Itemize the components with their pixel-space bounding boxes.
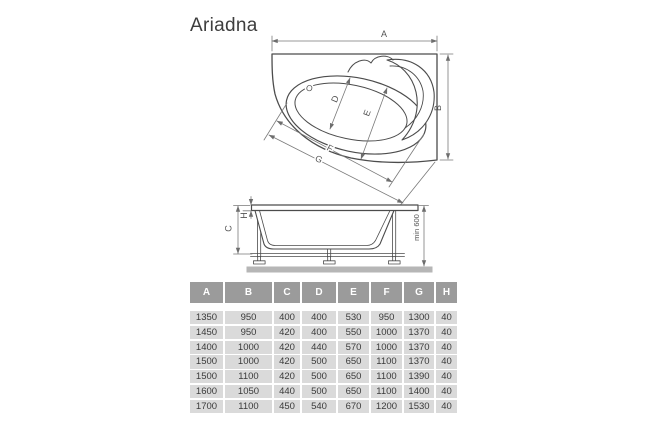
table-cell: 1530 (404, 400, 434, 413)
table-cell: 1000 (225, 341, 272, 354)
table-cell: 570 (338, 341, 369, 354)
table-cell: 400 (274, 311, 300, 324)
table-cell: 950 (225, 311, 272, 324)
table-body: 1350950400400530950130040145095042040055… (190, 311, 457, 413)
dimensions-table: ABCDEFGH 1350950400400530950130040145095… (190, 282, 457, 413)
frame-foot (328, 257, 331, 262)
table-cell: 420 (274, 370, 300, 383)
table-cell: 1500 (190, 355, 223, 368)
table-cell: 950 (371, 311, 402, 324)
frame-foot-plate (254, 261, 266, 264)
dim-label-h: H (239, 212, 249, 219)
table-cell: 40 (436, 341, 457, 354)
table-cell: 1370 (404, 355, 434, 368)
column-header: B (225, 282, 272, 303)
table-cell: 400 (302, 326, 336, 339)
table-cell: 550 (338, 326, 369, 339)
table-cell: 1100 (225, 370, 272, 383)
frame-foot-plate (324, 261, 336, 264)
table-cell: 650 (338, 385, 369, 398)
table-cell: 1400 (190, 341, 223, 354)
table-cell: 1000 (371, 341, 402, 354)
table-cell: 530 (338, 311, 369, 324)
table-cell: 650 (338, 355, 369, 368)
table-cell: 1350 (190, 311, 223, 324)
table-cell: 40 (436, 400, 457, 413)
side-view-drawing: C H min 600 (224, 197, 433, 273)
dim-ext-line (398, 162, 435, 208)
table-cell: 400 (302, 311, 336, 324)
table-cell: 1100 (371, 385, 402, 398)
table-cell: 1100 (371, 355, 402, 368)
table-cell: 40 (436, 385, 457, 398)
column-header: C (274, 282, 300, 303)
floor-bar (247, 267, 433, 273)
table-cell: 1700 (190, 400, 223, 413)
table-cell: 40 (436, 326, 457, 339)
table-header: ABCDEFGH (190, 282, 457, 303)
technical-drawing: A B O D E F G (185, 22, 465, 282)
table-cell: 670 (338, 400, 369, 413)
dim-label-min600: min 600 (412, 214, 421, 241)
column-header: F (371, 282, 402, 303)
table-cell: 540 (302, 400, 336, 413)
table-cell: 1100 (371, 370, 402, 383)
table-cell: 1200 (371, 400, 402, 413)
table-cell: 40 (436, 311, 457, 324)
table-cell: 420 (274, 355, 300, 368)
table-cell: 1450 (190, 326, 223, 339)
table-cell: 450 (274, 400, 300, 413)
dim-label-a: A (381, 29, 387, 39)
dim-label-c: C (224, 225, 234, 232)
table-cell: 1100 (225, 400, 272, 413)
table-cell: 1400 (404, 385, 434, 398)
table-cell: 420 (274, 326, 300, 339)
column-header: E (338, 282, 369, 303)
table-cell: 1370 (404, 326, 434, 339)
dim-label-b: B (433, 105, 443, 111)
table-cell: 950 (225, 326, 272, 339)
table-cell: 1000 (225, 355, 272, 368)
table-cell: 40 (436, 370, 457, 383)
column-header: D (302, 282, 336, 303)
table-cell: 1390 (404, 370, 434, 383)
frame-foot (393, 257, 396, 262)
dim-label-g: G (314, 153, 325, 165)
frame-post (393, 211, 396, 258)
bathtub-spec-sheet: Ariadna (0, 0, 650, 433)
table-cell: 500 (302, 385, 336, 398)
table-cell: 500 (302, 355, 336, 368)
table-cell: 1600 (190, 385, 223, 398)
top-view-drawing: A B O D E F G (264, 29, 453, 208)
frame-foot (258, 257, 261, 262)
table-cell: 500 (302, 370, 336, 383)
table-cell: 1500 (190, 370, 223, 383)
table-cell: 40 (436, 355, 457, 368)
column-header: A (190, 282, 223, 303)
column-header: G (404, 282, 434, 303)
dim-ext-line (264, 103, 287, 140)
table-cell: 650 (338, 370, 369, 383)
table-cell: 1370 (404, 341, 434, 354)
table-cell: 420 (274, 341, 300, 354)
table-cell: 1300 (404, 311, 434, 324)
column-header: H (436, 282, 457, 303)
tub-rim (252, 205, 419, 211)
table-cell: 1000 (371, 326, 402, 339)
table-cell: 1050 (225, 385, 272, 398)
frame-foot-plate (389, 261, 401, 264)
table-cell: 440 (274, 385, 300, 398)
table-cell: 440 (302, 341, 336, 354)
